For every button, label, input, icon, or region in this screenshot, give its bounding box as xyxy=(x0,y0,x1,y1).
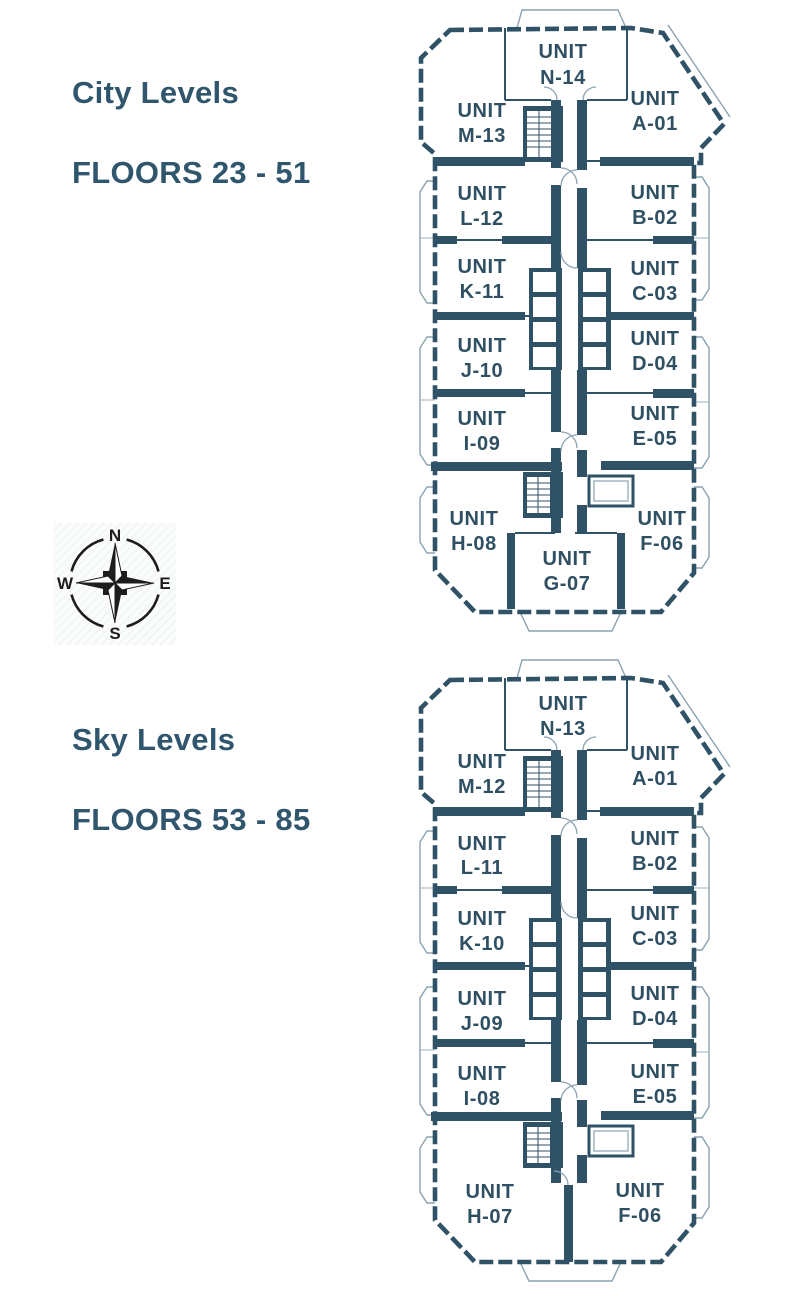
compass-west-label: W xyxy=(57,574,74,593)
svg-text:I-08: I-08 xyxy=(464,1088,501,1110)
svg-text:D-04: D-04 xyxy=(632,353,678,375)
svg-text:UNIT: UNIT xyxy=(449,508,498,530)
svg-text:I-09: I-09 xyxy=(464,433,501,455)
svg-text:J-10: J-10 xyxy=(461,360,503,382)
city-service-elevator xyxy=(589,476,633,506)
svg-text:UNIT: UNIT xyxy=(457,1063,506,1085)
svg-text:UNIT: UNIT xyxy=(457,988,506,1010)
svg-text:UNIT: UNIT xyxy=(457,408,506,430)
compass-south-label: S xyxy=(109,624,120,643)
svg-text:N-14: N-14 xyxy=(540,67,586,89)
svg-text:UNIT: UNIT xyxy=(457,256,506,278)
svg-text:UNIT: UNIT xyxy=(457,751,506,773)
city-stairs-bottom xyxy=(523,472,563,518)
svg-text:N-13: N-13 xyxy=(540,718,586,740)
svg-text:UNIT: UNIT xyxy=(457,100,506,122)
svg-text:UNIT: UNIT xyxy=(630,743,679,765)
sky-stairs-top xyxy=(523,756,563,812)
svg-text:M-13: M-13 xyxy=(458,125,506,147)
svg-text:L-11: L-11 xyxy=(461,857,503,879)
svg-text:UNIT: UNIT xyxy=(630,1061,679,1083)
compass-rose: N E S W xyxy=(50,517,180,649)
svg-text:M-12: M-12 xyxy=(458,776,506,798)
svg-text:L-12: L-12 xyxy=(460,208,504,230)
svg-text:C-03: C-03 xyxy=(632,928,678,950)
floorplan-sheet: City Levels FLOORS 23 - 51 Sky Levels FL… xyxy=(0,0,800,1296)
svg-text:B-02: B-02 xyxy=(632,853,678,875)
svg-text:H-08: H-08 xyxy=(451,533,497,555)
svg-text:UNIT: UNIT xyxy=(630,828,679,850)
svg-text:E-05: E-05 xyxy=(633,428,678,450)
svg-text:J-09: J-09 xyxy=(461,1013,503,1035)
svg-text:UNIT: UNIT xyxy=(457,335,506,357)
svg-text:A-01: A-01 xyxy=(632,113,678,135)
svg-text:UNIT: UNIT xyxy=(457,908,506,930)
compass-north-label: N xyxy=(109,526,121,545)
svg-text:F-06: F-06 xyxy=(618,1205,662,1227)
svg-text:K-11: K-11 xyxy=(460,281,505,303)
sky-stairs-bottom xyxy=(523,1122,563,1168)
svg-text:UNIT: UNIT xyxy=(630,403,679,425)
sky-levels-title-line1: Sky Levels xyxy=(72,720,311,760)
svg-text:UNIT: UNIT xyxy=(465,1181,514,1203)
svg-text:B-02: B-02 xyxy=(632,207,678,229)
svg-text:UNIT: UNIT xyxy=(542,548,591,570)
svg-text:UNIT: UNIT xyxy=(630,983,679,1005)
svg-text:UNIT: UNIT xyxy=(615,1180,664,1202)
svg-text:UNIT: UNIT xyxy=(630,258,679,280)
city-levels-title: City Levels FLOORS 23 - 51 xyxy=(72,33,311,233)
sky-levels-title: Sky Levels FLOORS 53 - 85 xyxy=(72,680,311,880)
svg-text:A-01: A-01 xyxy=(632,768,678,790)
svg-text:C-03: C-03 xyxy=(632,283,678,305)
svg-text:E-05: E-05 xyxy=(633,1086,678,1108)
svg-text:F-06: F-06 xyxy=(640,533,684,555)
svg-text:G-07: G-07 xyxy=(544,573,591,595)
svg-text:UNIT: UNIT xyxy=(457,833,506,855)
city-levels-title-line2: FLOORS 23 - 51 xyxy=(72,153,311,193)
svg-text:UNIT: UNIT xyxy=(538,41,587,63)
svg-text:D-04: D-04 xyxy=(632,1008,678,1030)
sky-levels-title-line2: FLOORS 53 - 85 xyxy=(72,800,311,840)
sky-service-elevator xyxy=(589,1126,633,1156)
svg-text:UNIT: UNIT xyxy=(630,182,679,204)
sky-levels-floorplan: UNIT N-13 UNIT M-12 UNIT A-01 UNIT L-11 … xyxy=(405,650,735,1295)
svg-text:K-10: K-10 xyxy=(459,933,505,955)
compass-east-label: E xyxy=(159,574,170,593)
svg-text:H-07: H-07 xyxy=(467,1206,513,1228)
svg-text:UNIT: UNIT xyxy=(538,693,587,715)
city-stairs-top xyxy=(523,106,563,162)
svg-text:UNIT: UNIT xyxy=(630,328,679,350)
svg-text:UNIT: UNIT xyxy=(630,903,679,925)
city-levels-floorplan: UNIT N-14 UNIT M-13 UNIT A-01 UNIT L-12 … xyxy=(405,0,735,645)
svg-text:UNIT: UNIT xyxy=(457,183,506,205)
svg-text:UNIT: UNIT xyxy=(630,88,679,110)
svg-text:UNIT: UNIT xyxy=(637,508,686,530)
city-levels-title-line1: City Levels xyxy=(72,73,311,113)
